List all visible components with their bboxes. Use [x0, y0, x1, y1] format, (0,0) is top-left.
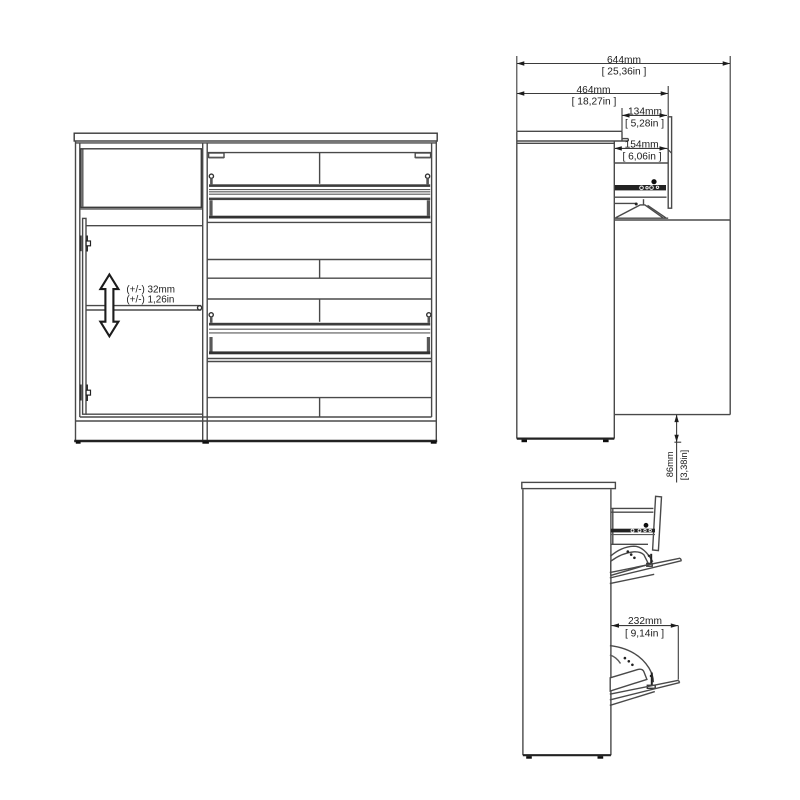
svg-text:86mm: 86mm — [665, 451, 675, 477]
svg-text:232mm: 232mm — [628, 616, 662, 627]
svg-text:[ 18,27in ]: [ 18,27in ] — [572, 96, 617, 107]
svg-text:464mm: 464mm — [577, 85, 611, 96]
svg-text:[ 9,14in ]: [ 9,14in ] — [625, 628, 664, 639]
svg-text:134mm: 134mm — [628, 107, 662, 118]
svg-text:[ 5,28in ]: [ 5,28in ] — [625, 118, 664, 129]
svg-text:[3,38in]: [3,38in] — [679, 450, 689, 481]
svg-text:644mm: 644mm — [607, 55, 641, 66]
svg-text:[ 6,06in ]: [ 6,06in ] — [622, 151, 661, 162]
svg-text:154mm: 154mm — [625, 139, 659, 150]
svg-text:[ 25,36in ]: [ 25,36in ] — [602, 66, 647, 77]
svg-text:(+/-) 1,26in: (+/-) 1,26in — [126, 295, 174, 306]
